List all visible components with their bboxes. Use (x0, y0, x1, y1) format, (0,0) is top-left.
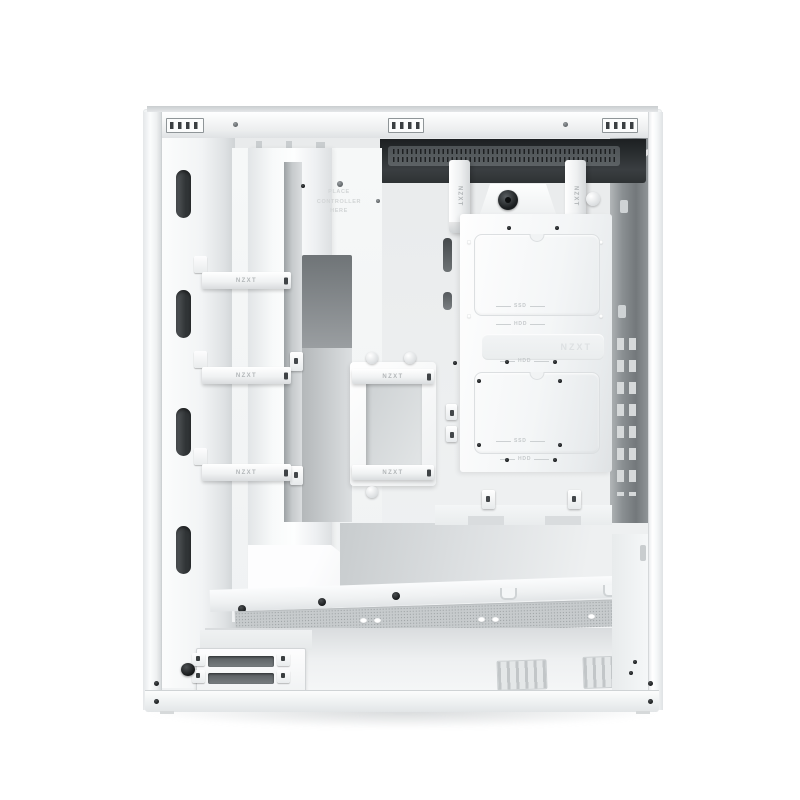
rear-hinge (640, 545, 646, 561)
cage-slot (208, 673, 274, 684)
screw-hole (507, 226, 511, 230)
strap-mount-tab (194, 256, 207, 273)
embossed-logo-panel: NZXT (482, 334, 604, 360)
tray-mount-tab (256, 141, 262, 148)
edge-notch (468, 516, 504, 525)
edge-notch (545, 516, 581, 525)
mesh-rivet (360, 618, 367, 623)
rear-hook (620, 200, 628, 213)
screw-hole (558, 379, 562, 383)
screw-hole (648, 699, 653, 704)
screw-hole (154, 681, 159, 686)
screw-hole (629, 671, 633, 675)
strap-label: NZXT (382, 374, 403, 380)
strap-label: NZXT (573, 186, 579, 206)
hdd-stamp: HDD (496, 321, 545, 327)
channel-clip (446, 404, 457, 420)
shroud-screw (318, 598, 326, 606)
screw-hole (376, 199, 380, 203)
screw-hole (477, 379, 481, 383)
psu-rail (496, 659, 547, 691)
mount-hole (599, 314, 603, 318)
cage-tab (277, 653, 290, 666)
strap-label: NZXT (236, 278, 257, 284)
bracket-slot (443, 292, 452, 310)
standoff-peg (586, 192, 600, 206)
tray-mount-tab (286, 141, 292, 148)
rear-vent-slots (629, 338, 636, 496)
strap-label: NZXT (236, 470, 257, 476)
fan-bracket-opening (366, 380, 422, 468)
strap-label: NZXT (382, 470, 403, 476)
channel-clip (290, 352, 303, 371)
product-photo-stage: PLACE CONTROLLER HERE NZXT NZXT SSD HDD … (0, 0, 800, 800)
standoff-peg (366, 352, 378, 364)
cable-grommet (176, 290, 191, 338)
standoff-peg (366, 486, 378, 498)
rear-vent-slots (617, 338, 624, 496)
thumbscrew-center (505, 197, 511, 203)
strap-label: NZXT (236, 373, 257, 379)
cable-grommet (176, 526, 191, 574)
screw-hole (453, 361, 457, 365)
cage-tab (277, 670, 290, 683)
shroud-clip (568, 490, 581, 509)
channel-lower (302, 348, 352, 522)
channel-cutout (302, 255, 352, 350)
mesh-rivet (588, 614, 595, 619)
channel-clip (290, 466, 303, 485)
shroud-clip (482, 490, 495, 509)
top-fan-slot-left (166, 118, 204, 133)
screw-hole (505, 458, 509, 462)
ssd-stamp: SSD (496, 303, 545, 309)
shroud-screw (392, 592, 400, 600)
bracket-slot (443, 238, 452, 272)
screw-hole (558, 443, 562, 447)
rear-hook (618, 305, 626, 318)
case-foot (160, 711, 174, 714)
standoff-peg (404, 352, 416, 364)
cage-thumbscrew (181, 663, 195, 676)
cable-strap: NZXT (202, 272, 291, 289)
vent-ticks (393, 149, 615, 154)
mesh-rivet (492, 617, 499, 622)
top-hole (563, 122, 568, 127)
screw-hole (553, 458, 557, 462)
channel-clip (446, 426, 457, 442)
cable-strap: NZXT (352, 369, 434, 384)
drive-cage-top (200, 630, 312, 650)
screw-hole (301, 184, 305, 188)
case-foot (636, 711, 650, 714)
screw-hole (553, 360, 557, 364)
mount-hole (467, 240, 471, 244)
cage-tab (192, 653, 205, 666)
front-panel-edge (143, 112, 162, 710)
place-controller-text: PLACE CONTROLLER HERE (310, 188, 368, 217)
mesh-rivet (478, 617, 485, 622)
mesh-rivet (374, 618, 381, 623)
top-fan-slot-right (602, 118, 638, 133)
strap-mount-tab (194, 448, 207, 465)
rear-panel-edge (648, 112, 663, 710)
strap-mount-tab (194, 351, 207, 368)
cable-strap: NZXT (352, 465, 434, 480)
embossed-logo: NZXT (561, 342, 593, 352)
strap-label: NZXT (457, 186, 463, 206)
cable-grommet (176, 170, 191, 218)
screw-hole (154, 699, 159, 704)
screw-hole (555, 226, 559, 230)
mount-hole (467, 314, 471, 318)
screw-hole (633, 660, 637, 664)
tray-bottom-edge (435, 505, 612, 525)
bottom-panel (145, 690, 659, 712)
top-hole (233, 122, 238, 127)
cable-strap: NZXT (202, 464, 291, 481)
ssd-stamp: SSD (496, 438, 545, 444)
screw-hole (648, 681, 653, 686)
shroud-hook (500, 588, 517, 600)
screw-hole (477, 443, 481, 447)
screw-hole (505, 360, 509, 364)
cable-grommet (176, 408, 191, 456)
cage-slot (208, 656, 274, 667)
cable-strap: NZXT (202, 367, 291, 384)
screw-hole (337, 181, 343, 187)
top-fan-slot-center (388, 118, 424, 133)
